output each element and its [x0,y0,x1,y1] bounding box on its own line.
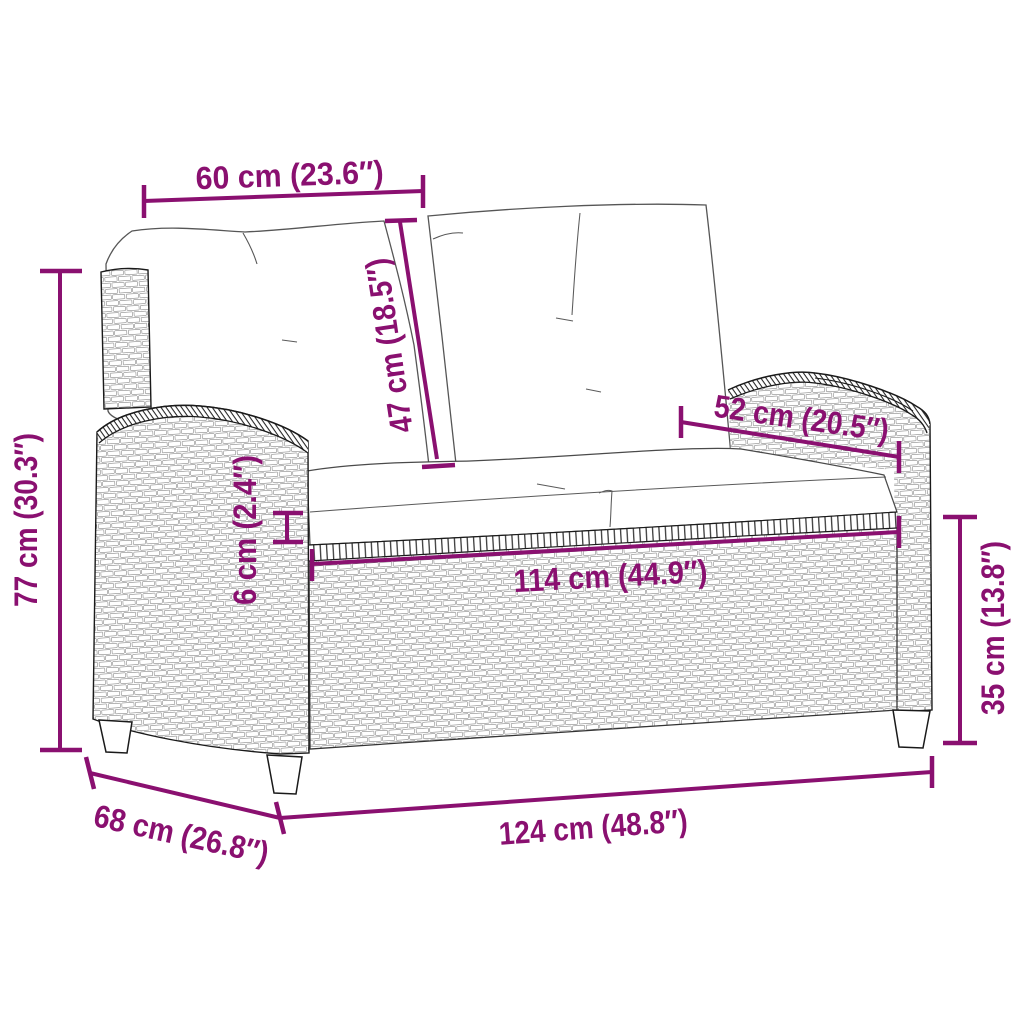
svg-text:60 cm (23.6″): 60 cm (23.6″) [195,154,384,197]
svg-text:77 cm (30.3″): 77 cm (30.3″) [8,433,44,607]
svg-text:35 cm (13.8″): 35 cm (13.8″) [975,541,1011,715]
svg-text:6 cm (2.4″): 6 cm (2.4″) [227,455,263,605]
